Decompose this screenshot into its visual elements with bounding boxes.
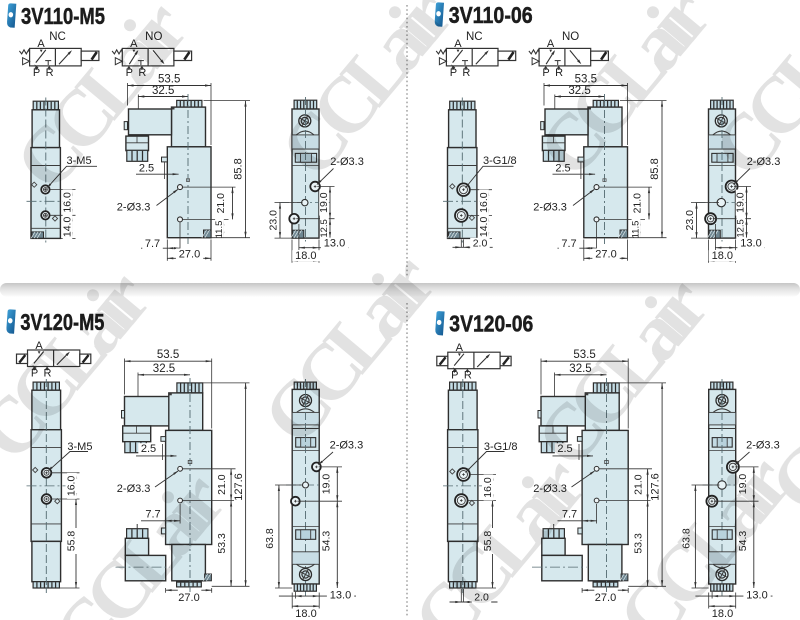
svg-text:18.0: 18.0 xyxy=(295,608,316,620)
svg-text:A: A xyxy=(37,38,45,50)
svg-text:55.8: 55.8 xyxy=(66,531,78,552)
svg-text:14.0: 14.0 xyxy=(478,217,490,238)
svg-text:3V110-M5: 3V110-M5 xyxy=(21,3,105,29)
svg-text:R: R xyxy=(555,67,563,79)
svg-text:23.0: 23.0 xyxy=(268,210,280,231)
svg-text:21.0: 21.0 xyxy=(215,193,227,214)
svg-text:27.0: 27.0 xyxy=(178,592,199,604)
svg-text:NO: NO xyxy=(562,31,579,43)
svg-text:2-Ø3.3: 2-Ø3.3 xyxy=(330,440,364,452)
svg-text:NC: NC xyxy=(49,31,66,43)
svg-text:2-Ø3.3: 2-Ø3.3 xyxy=(117,202,151,214)
svg-text:18.0: 18.0 xyxy=(295,250,316,262)
svg-text:19.0: 19.0 xyxy=(318,192,330,213)
svg-text:63.8: 63.8 xyxy=(264,528,276,549)
svg-text:3V120-06: 3V120-06 xyxy=(449,311,533,337)
svg-text:2.0: 2.0 xyxy=(473,237,488,249)
svg-text:3-G1/8: 3-G1/8 xyxy=(484,441,518,453)
svg-text:P: P xyxy=(33,67,40,79)
svg-text:R: R xyxy=(462,67,470,79)
svg-text:12.5: 12.5 xyxy=(735,219,746,238)
svg-text:P: P xyxy=(542,67,549,79)
svg-text:11.5: 11.5 xyxy=(630,221,641,239)
svg-text:19.0: 19.0 xyxy=(734,192,746,213)
svg-text:54.3: 54.3 xyxy=(321,531,333,552)
svg-text:23.0: 23.0 xyxy=(684,210,696,231)
svg-text:P: P xyxy=(450,67,457,79)
svg-text:19.0: 19.0 xyxy=(321,474,333,495)
svg-text:3-M5: 3-M5 xyxy=(67,441,92,453)
svg-text:13.0: 13.0 xyxy=(330,589,351,601)
svg-text:53.3: 53.3 xyxy=(632,533,644,554)
svg-text:7.7: 7.7 xyxy=(561,238,576,250)
svg-text:21.0: 21.0 xyxy=(632,193,644,214)
svg-text:27.0: 27.0 xyxy=(179,248,200,260)
svg-text:21.0: 21.0 xyxy=(632,474,644,495)
svg-text:32.5: 32.5 xyxy=(153,363,175,375)
svg-text:2.5: 2.5 xyxy=(139,163,154,175)
svg-text:R: R xyxy=(464,370,472,382)
svg-text:127.6: 127.6 xyxy=(233,473,245,501)
svg-text:13.0: 13.0 xyxy=(324,238,345,250)
svg-text:18.0: 18.0 xyxy=(712,250,733,262)
svg-text:21.0: 21.0 xyxy=(216,474,228,495)
svg-text:3V110-06: 3V110-06 xyxy=(449,2,533,28)
svg-text:A: A xyxy=(456,342,464,354)
svg-text:16.0: 16.0 xyxy=(66,476,78,497)
svg-text:P: P xyxy=(451,370,458,382)
svg-text:85.8: 85.8 xyxy=(649,158,661,179)
svg-text:53.5: 53.5 xyxy=(157,349,179,361)
svg-text:7.7: 7.7 xyxy=(145,238,160,250)
svg-text:85.8: 85.8 xyxy=(233,158,245,179)
svg-text:3-G1/8: 3-G1/8 xyxy=(483,155,517,167)
svg-text:18.0: 18.0 xyxy=(712,608,733,620)
svg-text:2-Ø3.3: 2-Ø3.3 xyxy=(533,202,567,214)
svg-text:27.0: 27.0 xyxy=(595,248,616,260)
svg-text:13.0: 13.0 xyxy=(746,589,767,601)
svg-text:2.5: 2.5 xyxy=(141,443,156,455)
svg-text:A: A xyxy=(547,38,555,50)
svg-text:11.5: 11.5 xyxy=(214,221,225,239)
svg-text:13.0: 13.0 xyxy=(740,238,761,250)
svg-text:16.0: 16.0 xyxy=(478,192,490,213)
svg-text:R: R xyxy=(46,67,54,79)
svg-text:NC: NC xyxy=(466,31,483,43)
svg-text:127.6: 127.6 xyxy=(650,473,662,501)
svg-text:14.0: 14.0 xyxy=(61,217,73,238)
svg-text:12.5: 12.5 xyxy=(319,219,330,238)
